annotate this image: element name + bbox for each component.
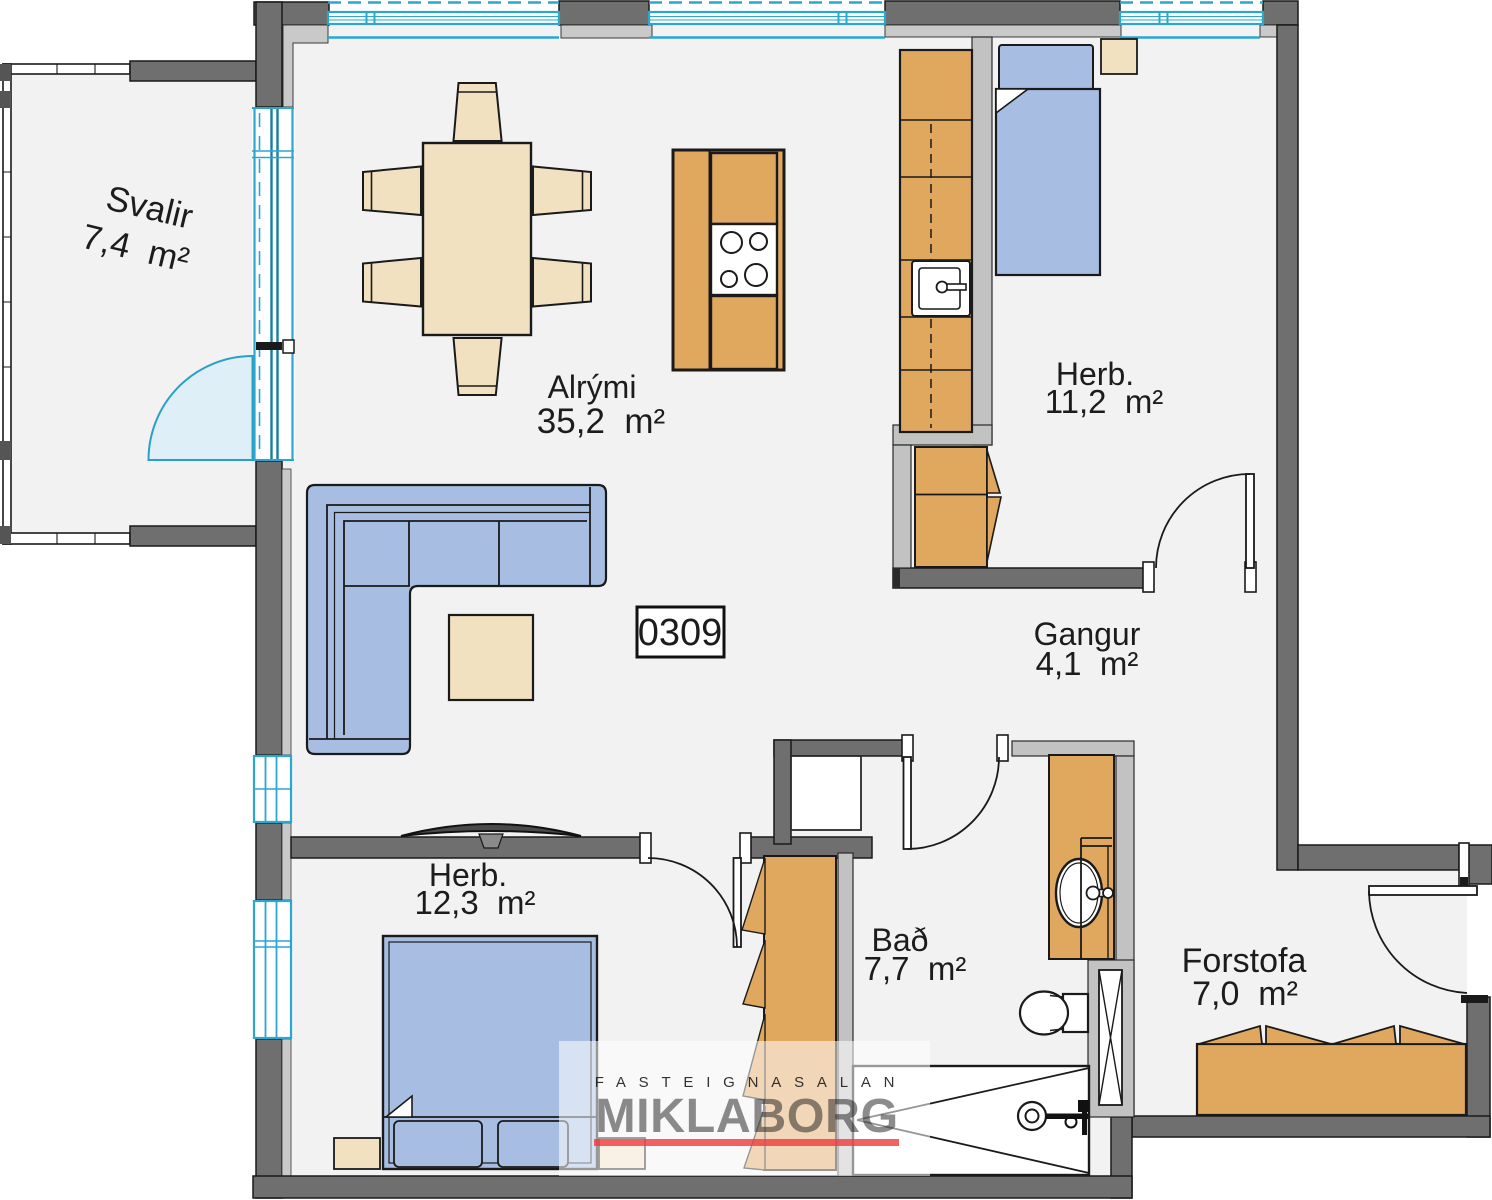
svg-text:MIKLABORG: MIKLABORG xyxy=(595,1089,899,1143)
svg-text:7,0 m²: 7,0 m² xyxy=(1192,975,1298,1013)
svg-text:Alrými: Alrými xyxy=(548,369,637,405)
svg-text:12,3 m²: 12,3 m² xyxy=(414,884,535,921)
svg-text:0309: 0309 xyxy=(638,612,723,654)
svg-text:4,1 m²: 4,1 m² xyxy=(1036,645,1139,682)
svg-text:7,7 m²: 7,7 m² xyxy=(864,950,967,987)
svg-text:11,2 m²: 11,2 m² xyxy=(1045,383,1164,420)
svg-text:35,2 m²: 35,2 m² xyxy=(537,402,665,441)
